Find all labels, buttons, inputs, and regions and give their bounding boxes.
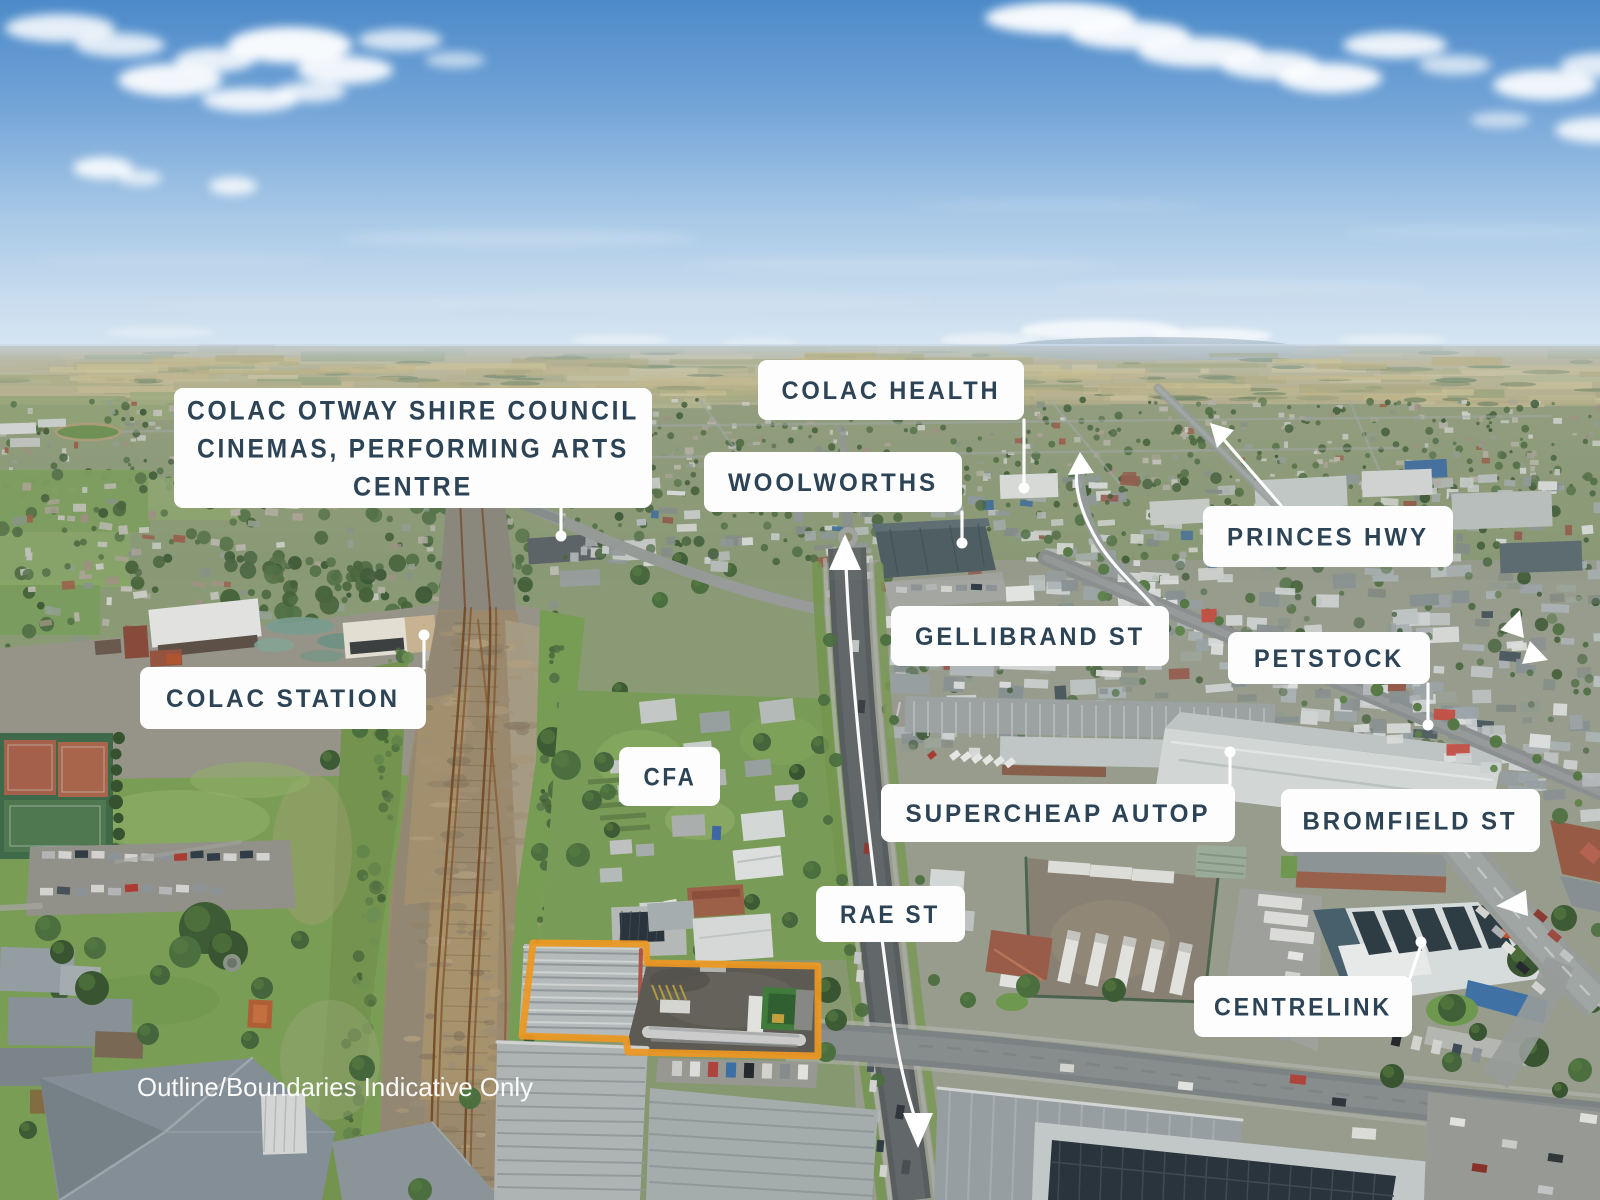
- svg-text:Outline/Boundaries Indicative: Outline/Boundaries Indicative Only: [137, 1072, 533, 1102]
- svg-text:COLAC OTWAY SHIRE COUNCIL: COLAC OTWAY SHIRE COUNCIL: [187, 396, 639, 426]
- svg-text:WOOLWORTHS: WOOLWORTHS: [728, 469, 938, 497]
- svg-text:BROMFIELD ST: BROMFIELD ST: [1303, 808, 1518, 836]
- svg-text:COLAC HEALTH: COLAC HEALTH: [782, 377, 1001, 405]
- svg-text:GELLIBRAND ST: GELLIBRAND ST: [915, 623, 1145, 651]
- svg-text:CFA: CFA: [644, 764, 697, 792]
- svg-text:CENTRE: CENTRE: [353, 472, 473, 502]
- svg-text:RAE ST: RAE ST: [840, 901, 940, 929]
- svg-text:CENTRELINK: CENTRELINK: [1214, 994, 1392, 1022]
- svg-text:COLAC STATION: COLAC STATION: [166, 685, 400, 713]
- svg-text:CINEMAS, PERFORMING ARTS: CINEMAS, PERFORMING ARTS: [197, 434, 629, 464]
- svg-text:PETSTOCK: PETSTOCK: [1254, 645, 1404, 673]
- svg-text:PRINCES HWY: PRINCES HWY: [1227, 524, 1429, 552]
- svg-text:SUPERCHEAP AUTOP: SUPERCHEAP AUTOP: [906, 800, 1211, 828]
